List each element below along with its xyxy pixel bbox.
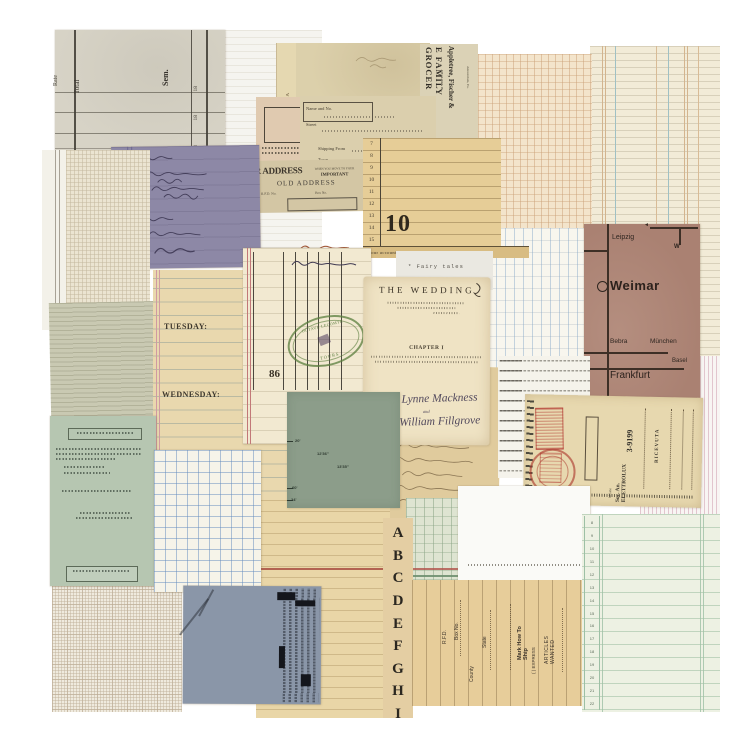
alphabet-index-strip: ABCDEFGHI xyxy=(383,518,413,718)
flourish-ornament-icon xyxy=(470,282,482,298)
receipt-city: Milano xyxy=(608,440,613,498)
rfd-label: R.F.D. No. xyxy=(261,192,276,196)
order-label-articles: ARTICLES WANTED xyxy=(544,618,556,664)
handwriting-marks xyxy=(354,53,414,71)
important-label: IMPORTANT xyxy=(321,171,349,176)
alphabet-letters: ABCDEFGHI xyxy=(383,526,413,718)
grocer-line-name: Appletree, Fischer & xyxy=(447,46,455,140)
quote-attribution-pattern xyxy=(433,312,459,314)
numbered-account-ledger: 789101112131415 10 xyxy=(363,138,501,246)
old-address-small-text: WHEN YOU MOVE TO YOUR xyxy=(315,166,355,171)
row-number: 10 xyxy=(363,174,380,186)
index-letter: I xyxy=(383,707,413,718)
row-number: 13 xyxy=(363,210,380,222)
map-label-bebra: Bebra xyxy=(610,338,627,345)
table-rule xyxy=(55,112,225,113)
box-label: Box No. xyxy=(315,191,327,195)
rotated-order-form: Box No. R.F.D. State County Mark How To … xyxy=(412,580,584,706)
old-address-slip: R ADDRESS WHEN YOU MOVE TO YOUR IMPORTAN… xyxy=(253,159,366,213)
index-letter: H xyxy=(383,684,413,699)
stamp-box xyxy=(66,566,138,582)
order-label-county: County xyxy=(469,652,475,682)
slate-blue-form xyxy=(183,586,322,705)
row-number: 20 xyxy=(585,671,599,684)
dotted-rule xyxy=(460,600,461,656)
olive-lined-paper xyxy=(49,301,169,419)
redaction-bar xyxy=(279,646,285,668)
map-label-weimar: Weimar xyxy=(610,278,660,293)
old-address-big-text: R ADDRESS xyxy=(255,165,303,176)
map-label-muenchen: München xyxy=(650,338,677,345)
plat-dimension: 12'36" xyxy=(317,451,329,456)
weimar-railway-map: ◄ Leipzig W Weimar Bebra München Basel F… xyxy=(584,224,700,402)
row-number: 9 xyxy=(585,529,599,542)
text-line-pattern xyxy=(62,490,132,492)
rail-line xyxy=(584,352,668,354)
dotted-rule xyxy=(490,610,491,670)
body-line-pattern xyxy=(375,361,479,363)
blue-grid-paper xyxy=(154,450,261,592)
row-number: 14 xyxy=(363,222,380,234)
row-number: 12 xyxy=(585,568,599,581)
rotated-gray-ledger: Total Sem. Rate 181818 xyxy=(55,30,225,156)
index-letter: B xyxy=(383,549,413,564)
text-line-pattern xyxy=(56,448,142,450)
row-number: 11 xyxy=(363,186,380,198)
text-line-pattern xyxy=(80,512,130,514)
form-row-label: Shipping From xyxy=(318,146,345,151)
city-marker-icon xyxy=(597,281,608,292)
white-receipt xyxy=(458,486,590,586)
map-label-frankfurt: Frankfurt xyxy=(610,370,650,381)
rail-line xyxy=(679,227,681,245)
form-row-label: Street xyxy=(306,122,317,127)
form-box xyxy=(287,197,357,211)
column-rule xyxy=(700,514,701,712)
red-stamp-block xyxy=(535,407,564,449)
vintage-paper-collage: Total Sem. Rate 181818 SOAP CONTA E FAMI… xyxy=(0,0,750,750)
form-header-box xyxy=(68,428,142,440)
grocer-line-city: Amsterdam, Pa. xyxy=(466,66,470,122)
text-column-pattern xyxy=(500,360,522,470)
postmark-inner-ring xyxy=(536,455,569,488)
redaction-bar xyxy=(277,592,295,600)
dotted-rule xyxy=(510,604,511,670)
form-box xyxy=(584,416,598,480)
ledger-label-total: Total xyxy=(73,50,81,94)
index-letter: G xyxy=(383,662,413,677)
row-number: 22 xyxy=(585,697,599,710)
dotted-rule xyxy=(643,409,646,489)
column-number: 18 xyxy=(193,115,199,121)
text-line-pattern xyxy=(77,432,133,434)
row-number: 18 xyxy=(585,645,599,658)
dotted-rule xyxy=(322,130,422,132)
row-number: 21 xyxy=(585,684,599,697)
column-rule xyxy=(703,514,704,712)
old-address-label: OLD ADDRESS xyxy=(277,179,336,188)
row-numbers: 8910111213141516171819202122 xyxy=(584,516,600,710)
index-letter: F xyxy=(383,639,413,654)
row-number: 14 xyxy=(585,594,599,607)
text-line-pattern xyxy=(76,517,132,519)
map-label-basel: Basel xyxy=(672,358,687,364)
order-label-express: ( ) EXPRESS xyxy=(531,640,536,674)
row-number: 19 xyxy=(585,658,599,671)
direction-arrow-icon: ◄ xyxy=(644,223,649,228)
survey-tick xyxy=(287,488,293,489)
index-letter: E xyxy=(383,617,413,632)
index-letter: A xyxy=(383,526,413,541)
table-rule xyxy=(191,30,192,156)
row-number: 13 xyxy=(585,581,599,594)
chapter-heading: CHAPTER I xyxy=(363,345,490,352)
row-number: 7 xyxy=(363,138,380,150)
text-line-pattern xyxy=(64,466,104,468)
column-rule xyxy=(602,514,603,712)
handwriting-marks xyxy=(289,256,363,270)
quote-line-pattern xyxy=(387,302,465,304)
rail-line xyxy=(607,224,609,402)
form-row-label: Name and No. xyxy=(306,106,332,111)
fine-grid-paper xyxy=(52,574,182,712)
row-number: 8 xyxy=(585,516,599,529)
big-page-number: 10 xyxy=(385,212,411,236)
redaction-bar xyxy=(295,600,315,606)
tuesday-heading: TUESDAY: xyxy=(164,322,207,331)
receipt-title: RICEVUTA xyxy=(655,407,661,463)
ledger-column-numbers: 181818 xyxy=(193,86,199,150)
row-number: 9 xyxy=(363,162,380,174)
fine-print-pattern xyxy=(468,564,580,566)
green-german-form xyxy=(50,416,156,586)
map-label-leipzig: Leipzig xyxy=(612,234,634,241)
order-label-ship: Mark How To Ship xyxy=(517,616,529,660)
map-label-w: W xyxy=(674,244,680,250)
table-rule xyxy=(206,30,208,156)
row-number: 12 xyxy=(363,198,380,210)
redaction-bar xyxy=(301,674,311,686)
dotted-rule xyxy=(681,409,684,489)
plat-dimension: 20' xyxy=(295,438,300,443)
column-number: 18 xyxy=(193,86,199,92)
column-rule xyxy=(283,252,284,390)
quote-line-pattern xyxy=(397,307,455,309)
index-letter: D xyxy=(383,594,413,609)
text-line-pattern xyxy=(64,472,110,474)
row-number: 10 xyxy=(585,542,599,555)
plat-dimension: 13'35" xyxy=(337,464,349,469)
row-number: 15 xyxy=(363,234,380,246)
mint-numbered-ledger: 8910111213141516171819202122 xyxy=(582,514,720,712)
form-box xyxy=(303,102,373,122)
ledger-label-sem: Sem. xyxy=(161,52,170,86)
ledger-label-rate: Rate xyxy=(53,58,59,86)
index-letter: C xyxy=(383,571,413,586)
text-line-pattern xyxy=(262,152,302,154)
rail-line xyxy=(650,227,698,229)
row-number: 11 xyxy=(585,555,599,568)
dotted-rule xyxy=(562,608,563,672)
text-line-pattern xyxy=(56,453,142,455)
rail-line xyxy=(584,250,607,252)
row-number: 16 xyxy=(585,620,599,633)
red-rule xyxy=(256,568,390,570)
order-label-rfd: R.F.D. xyxy=(442,616,448,644)
dotted-rule xyxy=(691,410,694,490)
scratch-mark xyxy=(198,589,214,616)
column-rule xyxy=(253,252,254,390)
column-rule xyxy=(295,252,296,390)
table-rule xyxy=(55,133,225,134)
row-number: 17 xyxy=(585,632,599,645)
grocer-line-dealers: DEALERS IN xyxy=(440,70,444,110)
dotted-rule xyxy=(324,116,394,118)
survey-tick xyxy=(287,500,293,501)
text-line-pattern xyxy=(73,570,129,572)
survey-tick xyxy=(287,441,293,442)
wednesday-heading: WEDNESDAY: xyxy=(162,390,220,399)
sage-survey-plat: 20' 12'36" 13'35" 60' 24' xyxy=(287,392,400,508)
margin-rule xyxy=(247,248,248,444)
dotted-rule xyxy=(669,409,672,489)
page-number: 86 xyxy=(269,368,280,380)
order-label-state: State xyxy=(482,624,488,648)
body-line-pattern xyxy=(371,356,483,358)
row-number: 15 xyxy=(585,607,599,620)
text-line-pattern xyxy=(56,458,116,460)
row-number: 8 xyxy=(363,150,380,162)
row-numbers: 789101112131415 xyxy=(363,138,381,246)
margin-rule xyxy=(250,248,251,444)
fairy-tales-text: * Fairy tales xyxy=(408,263,464,270)
